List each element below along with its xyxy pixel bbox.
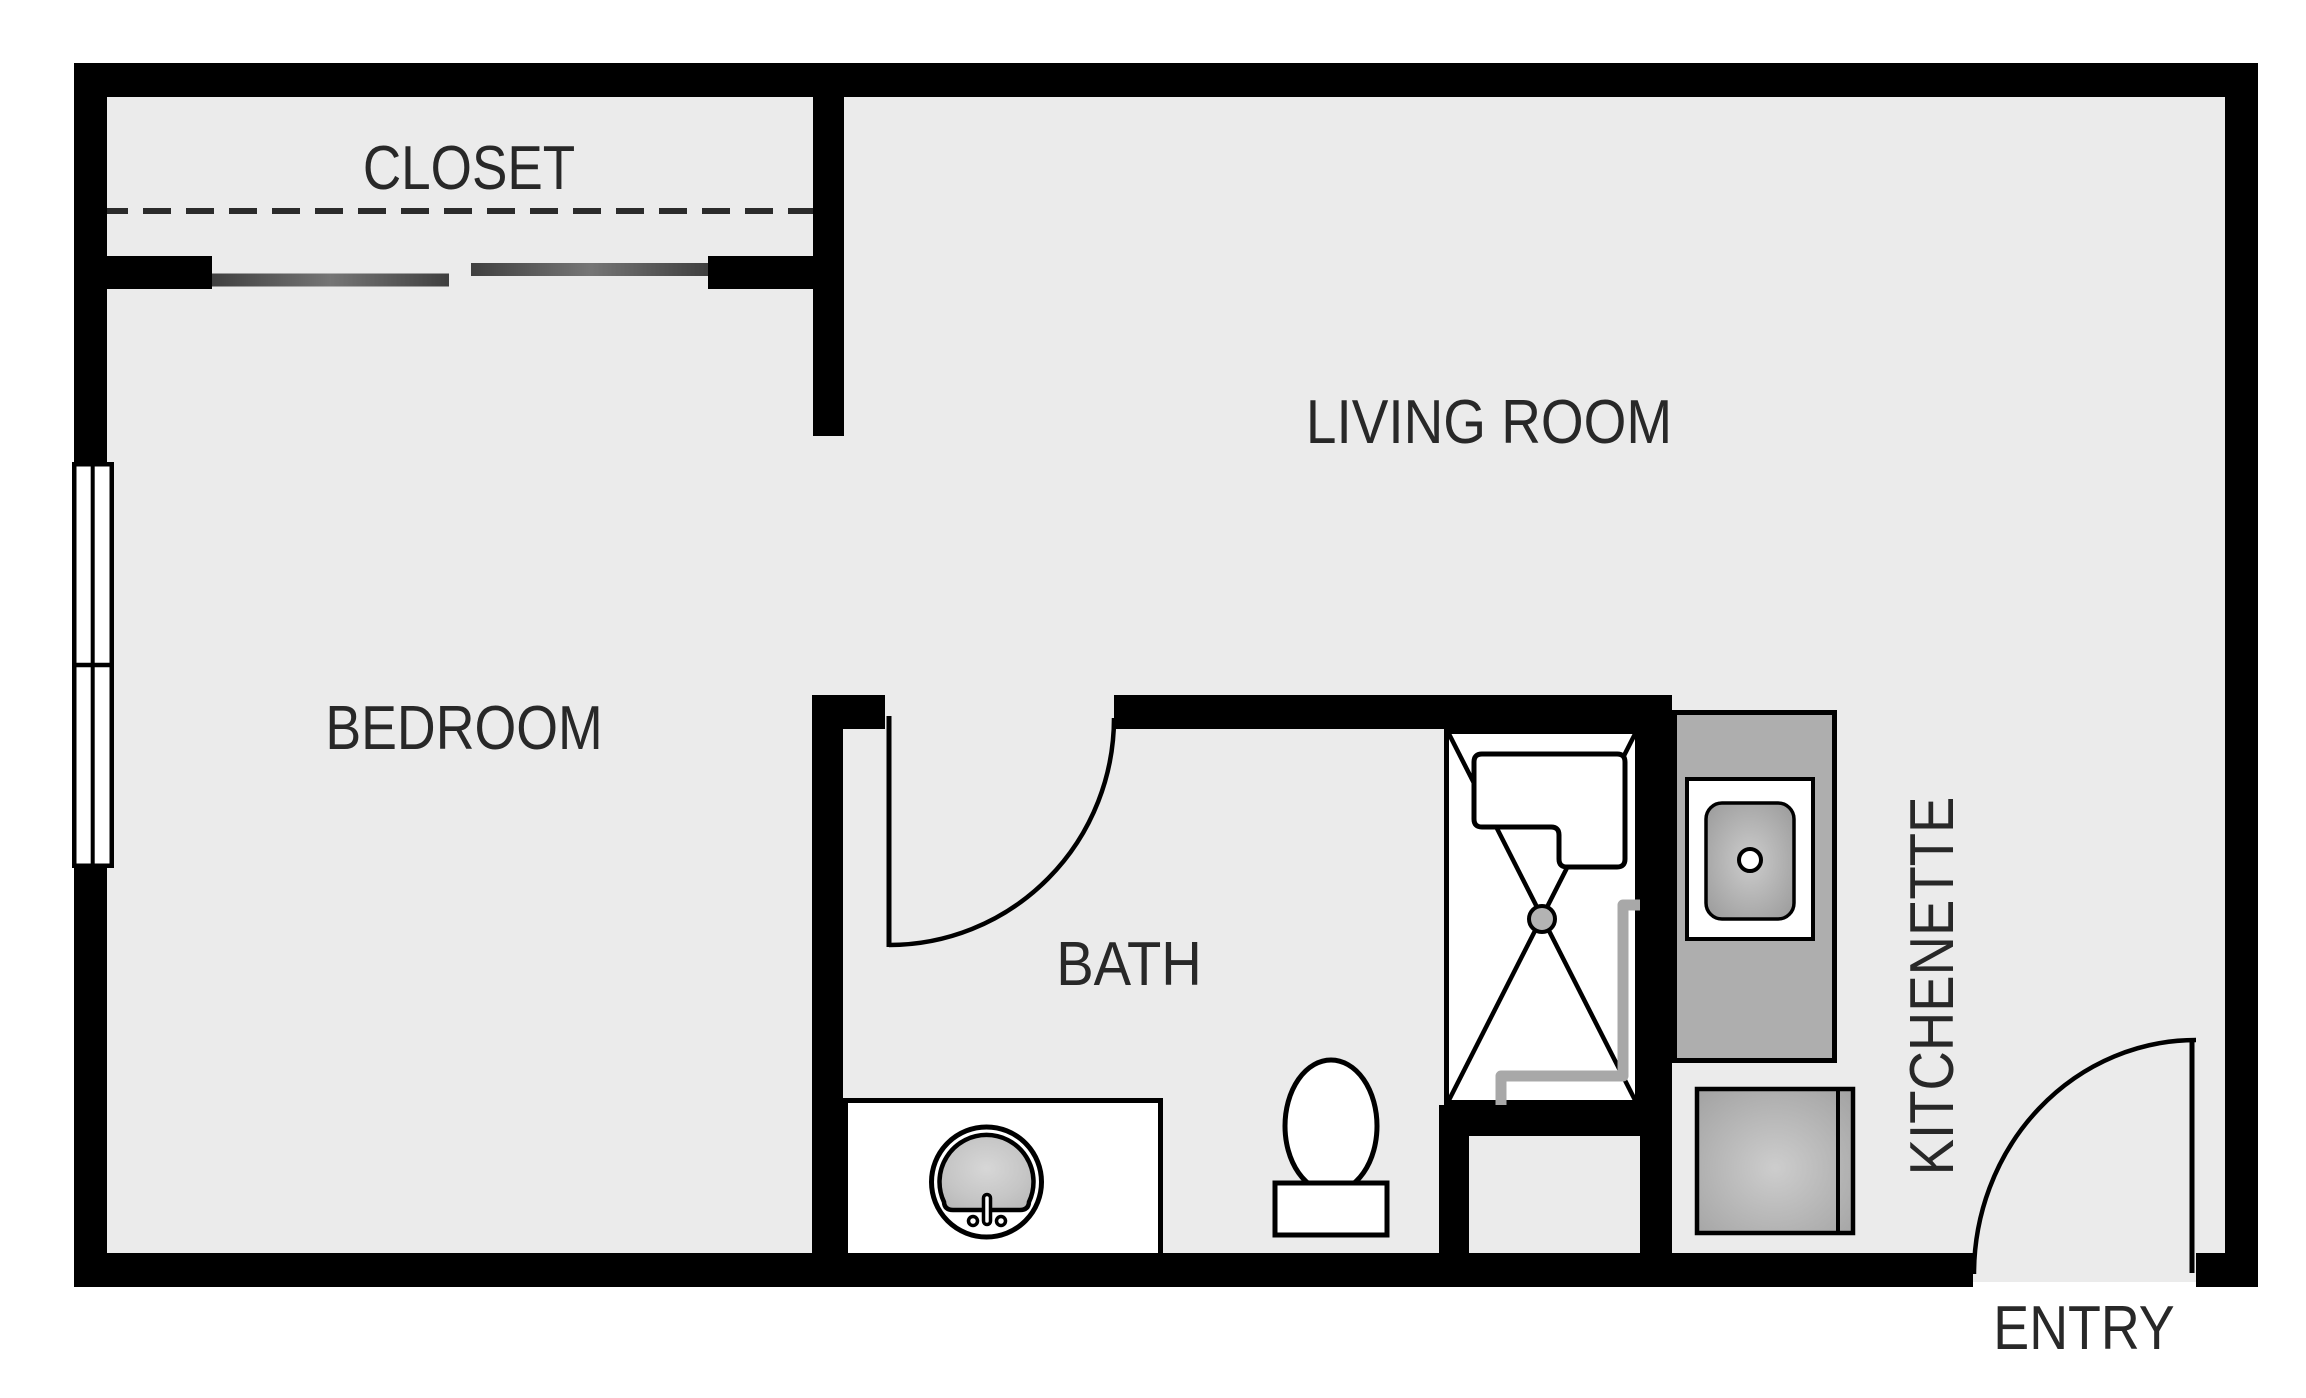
svg-text:ENTRY: ENTRY bbox=[1993, 1293, 2174, 1362]
svg-text:BEDROOM: BEDROOM bbox=[325, 694, 602, 762]
svg-text:CLOSET: CLOSET bbox=[363, 134, 575, 203]
svg-text:KITCHENETTE: KITCHENETTE bbox=[1898, 797, 1967, 1176]
svg-text:LIVING ROOM: LIVING ROOM bbox=[1306, 388, 1672, 457]
svg-text:BATH: BATH bbox=[1056, 928, 1202, 998]
